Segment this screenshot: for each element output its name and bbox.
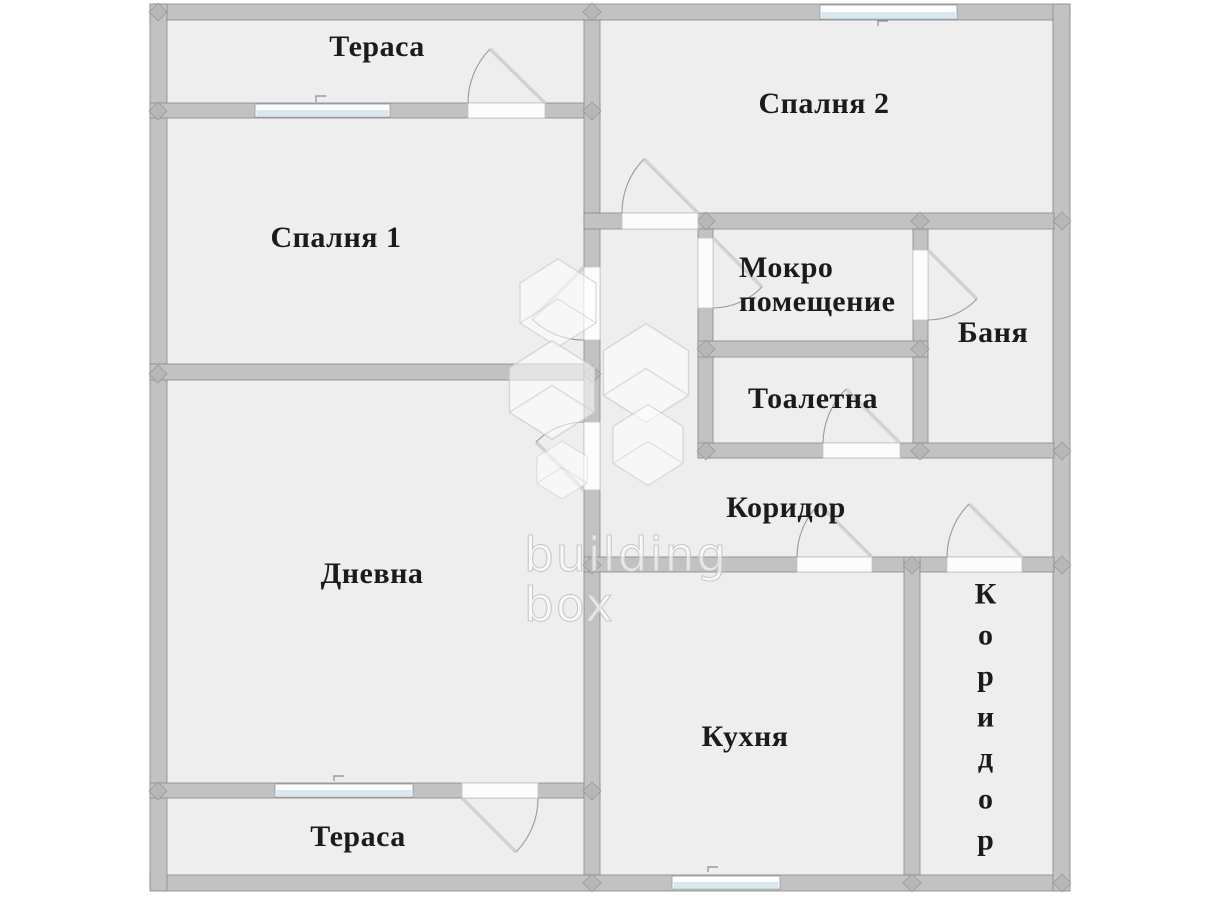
watermark-text-line2: box xyxy=(524,578,615,633)
room-label-toilet: Тоалетна xyxy=(748,382,878,416)
room-label-bathroom: Баня xyxy=(958,316,1028,350)
room-label-corridor-side: Коридор xyxy=(970,578,1000,865)
floor-plan-page: building box Тераса Спалня 2 Спалня 1 Мо… xyxy=(0,0,1216,898)
room-label-corridor: Коридор xyxy=(726,491,846,525)
room-label-bedroom-1: Спалня 1 xyxy=(270,221,401,255)
room-label-terrace-top: Тераса xyxy=(329,30,425,64)
floor-plan-drawing: building box xyxy=(0,0,1216,898)
room-label-living-room: Дневна xyxy=(321,557,424,591)
watermark-text-line1: building xyxy=(524,528,728,583)
room-label-terrace-bottom: Тераса xyxy=(310,820,406,854)
room-label-wet-room: Мокро помещение xyxy=(739,251,954,319)
room-label-kitchen: Кухня xyxy=(701,720,788,754)
room-label-bedroom-2: Спалня 2 xyxy=(758,87,889,121)
